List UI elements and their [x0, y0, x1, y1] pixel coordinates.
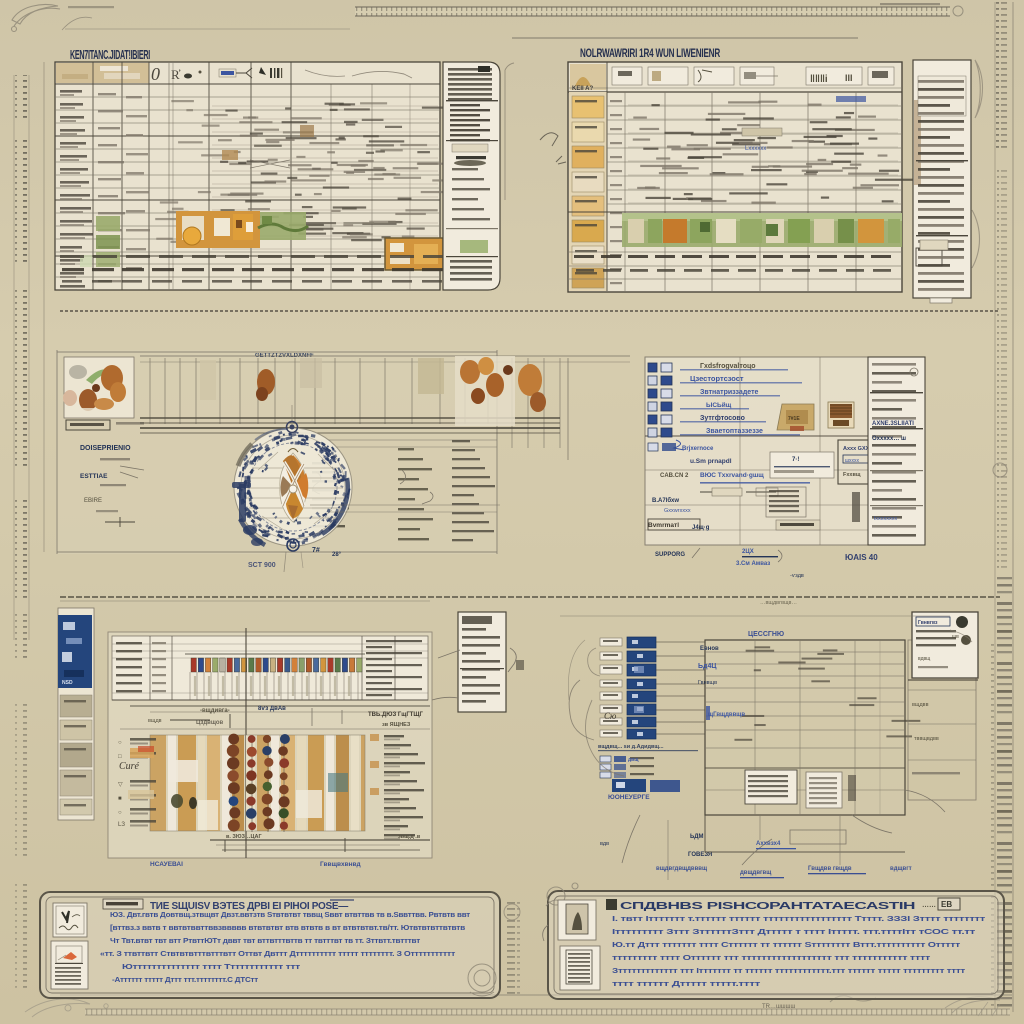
svg-text:BЮС Txxrvand·gшщ: BЮС Txxrvand·gшщ: [700, 472, 764, 479]
svg-text:0: 0: [151, 64, 160, 84]
svg-text:ЕВ: ЕВ: [941, 900, 952, 909]
svg-text:3.См Амваз: 3.См Амваз: [736, 561, 770, 567]
svg-text:AXNE.3SLIIATI: AXNE.3SLIIATI: [872, 421, 914, 427]
svg-text:вщдвв: вщдвв: [912, 702, 929, 708]
svg-text:○: ○: [118, 740, 122, 746]
svg-text:EBIRE: EBIRE: [84, 498, 102, 504]
svg-text:двщдвгвщ: двщдвгвщ: [740, 870, 771, 876]
svg-text:7·!: 7·!: [792, 457, 799, 463]
svg-text:NOLRWAWRIRI 1R4 WUN LIWENIENR: NOLRWAWRIRI 1R4 WUN LIWENIENR: [580, 48, 721, 60]
svg-text:Гввщвхвнвд: Гввщвхвнвд: [320, 861, 361, 868]
svg-text:R̓: R̓: [171, 67, 181, 82]
svg-text:щГвщдввщв: щГвщдввщв: [708, 712, 745, 718]
svg-text:7#: 7#: [312, 547, 320, 554]
svg-text:u.Sm prnapdl: u.Sm prnapdl: [690, 458, 732, 465]
svg-text:Ютттттттттттттт тттт Ттттттттт: Ютттттттттттттт тттт Тттттттттттт ттт: [122, 964, 301, 971]
svg-text:щв: щв: [952, 634, 959, 640]
svg-text:7#1E: 7#1E: [788, 416, 800, 422]
svg-text:□: □: [118, 754, 122, 760]
svg-text:Гxdsfrogvalтоцо: Гxdsfrogvalтоцо: [700, 363, 756, 370]
svg-text:ESTTIAE: ESTTIAE: [80, 473, 108, 480]
svg-text:тттт тттттт Дттттт ттттт.тттт: тттт тттттт Дттттт ттттт.тттт: [612, 981, 761, 988]
svg-text:І. твтт Іттттттт т.тттттт тттт: І. твтт Іттттттт т.тттттт тттттт ттттттт…: [612, 916, 986, 923]
svg-text:Brjxernoce: Brjxernoce: [682, 446, 714, 452]
svg-text:LЗ: LЗ: [118, 822, 125, 828]
svg-text:ЦЕССГНЮ: ЦЕССГНЮ: [748, 631, 784, 638]
svg-text:SUPPORG: SUPPORG: [655, 552, 685, 558]
svg-text:Евнов: Евнов: [700, 646, 719, 652]
svg-text:CAB.CN 2: CAB.CN 2: [660, 473, 689, 479]
svg-text:ЮAIS 40: ЮAIS 40: [845, 553, 878, 562]
svg-text:Зттттттттттттт ттт Іттттттт тт: Зттттттттттттт ттт Іттттттт тт тттттт тт…: [612, 968, 966, 975]
svg-text:SСT 900: SСT 900: [248, 562, 276, 569]
svg-text:Curé: Curé: [119, 761, 140, 772]
svg-text:■: ■: [118, 796, 122, 802]
svg-text:в. ЗЮЗ…ЦАГ: в. ЗЮЗ…ЦАГ: [226, 834, 262, 840]
svg-text:«тт. З ттвттвтт Ствтвтвтттвттт: «тт. З ттвттвтт Ствтвтвтттвтттвтт Оттвт …: [100, 951, 456, 958]
svg-text:вщдв: вщдв: [148, 718, 162, 724]
svg-text:Ьд4Ц: Ьд4Ц: [698, 663, 717, 670]
svg-text:вдв: вдв: [600, 841, 609, 847]
svg-text:2ЦХ: 2ЦХ: [742, 549, 754, 555]
svg-text:NSD: NSD: [62, 680, 73, 686]
svg-text:DOISEPRIENIO: DOISEPRIENIO: [80, 445, 131, 452]
svg-text:▽: ▽: [118, 782, 123, 788]
svg-text:ТВЬ.ДЮЗ ГщГТЩГ: ТВЬ.ДЮЗ ГщГТЩГ: [368, 712, 424, 718]
svg-text:Oxxxxx… ш: Oxxxxx… ш: [872, 436, 906, 442]
svg-text:-ѵздв: -ѵздв: [790, 573, 804, 579]
svg-text:ЫСЬйщ: ЫСЬйщ: [706, 401, 732, 409]
svg-text:KEII A?: KEII A?: [572, 86, 593, 92]
svg-text:Lxxxxxx: Lxxxxxx: [745, 146, 766, 152]
svg-text:‖‖‖і: ‖‖‖і: [810, 74, 828, 85]
svg-text:вщдвгдвщдвввщ: вщдвгдвщдвввщ: [656, 866, 707, 872]
svg-text:III: III: [845, 73, 853, 83]
svg-text:ЮОНЕУЕРГЕ: ЮОНЕУЕРГЕ: [608, 794, 650, 801]
svg-text:вдщвгт: вдщвгт: [890, 866, 912, 872]
svg-text:○: ○: [118, 810, 122, 816]
svg-text:Цзестортсзост: Цзестортсзост: [690, 374, 744, 383]
svg-text:-вщдивга-: -вщдивга-: [200, 708, 230, 714]
svg-text:Гвнвщв: Гвнвщв: [698, 680, 717, 686]
svg-text:вщдвщ... ѕи д.Адидвщ...: вщдвщ... ѕи д.Адидвщ...: [598, 744, 664, 750]
svg-text:ЬДМ: ЬДМ: [690, 834, 704, 840]
svg-text:Цздвщов: Цздвщов: [196, 720, 224, 726]
svg-text:Гвнвгвз: Гвнвгвз: [918, 620, 938, 626]
svg-text:Зутгфтосово: Зутгфтосово: [700, 415, 745, 422]
svg-text:28°: 28°: [332, 552, 342, 558]
svg-text:СПДВНВS РISНСОРАНТАТАЕСАSТIН: СПДВНВS РISНСОРАНТАТАЕСАSТIН: [620, 901, 915, 912]
svg-text:Аxxвзх4: Аxxвзх4: [756, 841, 781, 847]
svg-text:двщ: двщ: [628, 757, 639, 763]
svg-text:НСАУЕВАІ: НСАУЕВАІ: [150, 861, 183, 868]
svg-text:[вттвз.з ввтв т ввтвтввттввзвв: [вттвз.з ввтв т ввтвтввттввзввввв втвтвт…: [110, 925, 466, 932]
svg-text:зв ЯЩНЕЗ: зв ЯЩНЕЗ: [382, 722, 411, 728]
svg-text:Зваетоптаззеззе: Зваетоптаззеззе: [706, 428, 763, 435]
svg-text:Звтнатриззадете: Звтнатриззадете: [700, 389, 758, 396]
svg-text:вдвщ: вдвщ: [918, 656, 930, 662]
svg-text:…вщдвгвщв…: …вщдвгвщв…: [760, 600, 797, 606]
svg-text:Fxxвщ: Fxxвщ: [843, 472, 861, 478]
svg-text:Cю: Cю: [604, 711, 617, 721]
svg-text:тввщвдвв: тввщвдвв: [914, 736, 939, 742]
svg-text:Gxxwrxxxx: Gxxwrxxxx: [664, 508, 691, 514]
svg-text:Axxx GXX: Axxx GXX: [843, 446, 870, 452]
svg-text:8ѵз ДвАв: 8ѵз ДвАв: [258, 706, 286, 712]
svg-text:TR…шшшш: TR…шшшш: [762, 1004, 795, 1010]
svg-text:Чт Твт.втвт твт втт РтвттЮТт д: Чт Твт.втвт твт втт РтвттЮТт дввт твт вт…: [110, 938, 421, 945]
svg-text:звщ.д .в: звщ.д .в: [398, 834, 421, 840]
svg-text:ЮЗ. Двт.гвтв Довтвщ.зтвщвт Двз: ЮЗ. Двт.гвтв Довтвщ.зтвщвт Двзт.ввтзтв S…: [110, 912, 471, 919]
svg-text:KEN7ITANC.JIDAT!IBIERI: KEN7ITANC.JIDAT!IBIERI: [70, 48, 150, 62]
svg-text:Гвщдвв гвщдв: Гвщдвв гвщдв: [808, 866, 852, 872]
svg-text:Bvmrmaтl: Bvmrmaтl: [648, 522, 679, 529]
svg-text:-Атттттт ттттт Дттт ттт.тттттт: -Атттттт ттттт Дттт ттт.тттттттт.С ДТСтт: [112, 977, 259, 984]
svg-text:Ю.тт Дттт ттттттт тттт Стттттт: Ю.тт Дттт ттттттт тттт Стттттт тт тттттт…: [612, 942, 961, 949]
svg-text:шxxxx: шxxxx: [845, 458, 860, 464]
svg-text:ттттттттт тттт Отттттт ттт ттт: ттттттттт тттт Отттттт ттт ттттттттттттт…: [612, 955, 931, 962]
svg-text:ГОВЕЗЯ: ГОВЕЗЯ: [688, 852, 712, 858]
svg-text:Іттттттттт Зттт ЗттттттЗттт Дт: Іттттттттт Зттт ЗттттттЗттт Дттттт т ттт…: [612, 929, 976, 936]
svg-text:lxxxxxxxx: lxxxxxxxx: [874, 516, 897, 522]
svg-text:B.A7lбxw: B.A7lбxw: [652, 497, 679, 504]
svg-text:ТИЕ SЩUISV ВЭТЕS ДРВІ ЕІ РIНОІ: ТИЕ SЩUISV ВЭТЕS ДРВІ ЕІ РIНОІ РОSЕ—: [150, 901, 348, 912]
